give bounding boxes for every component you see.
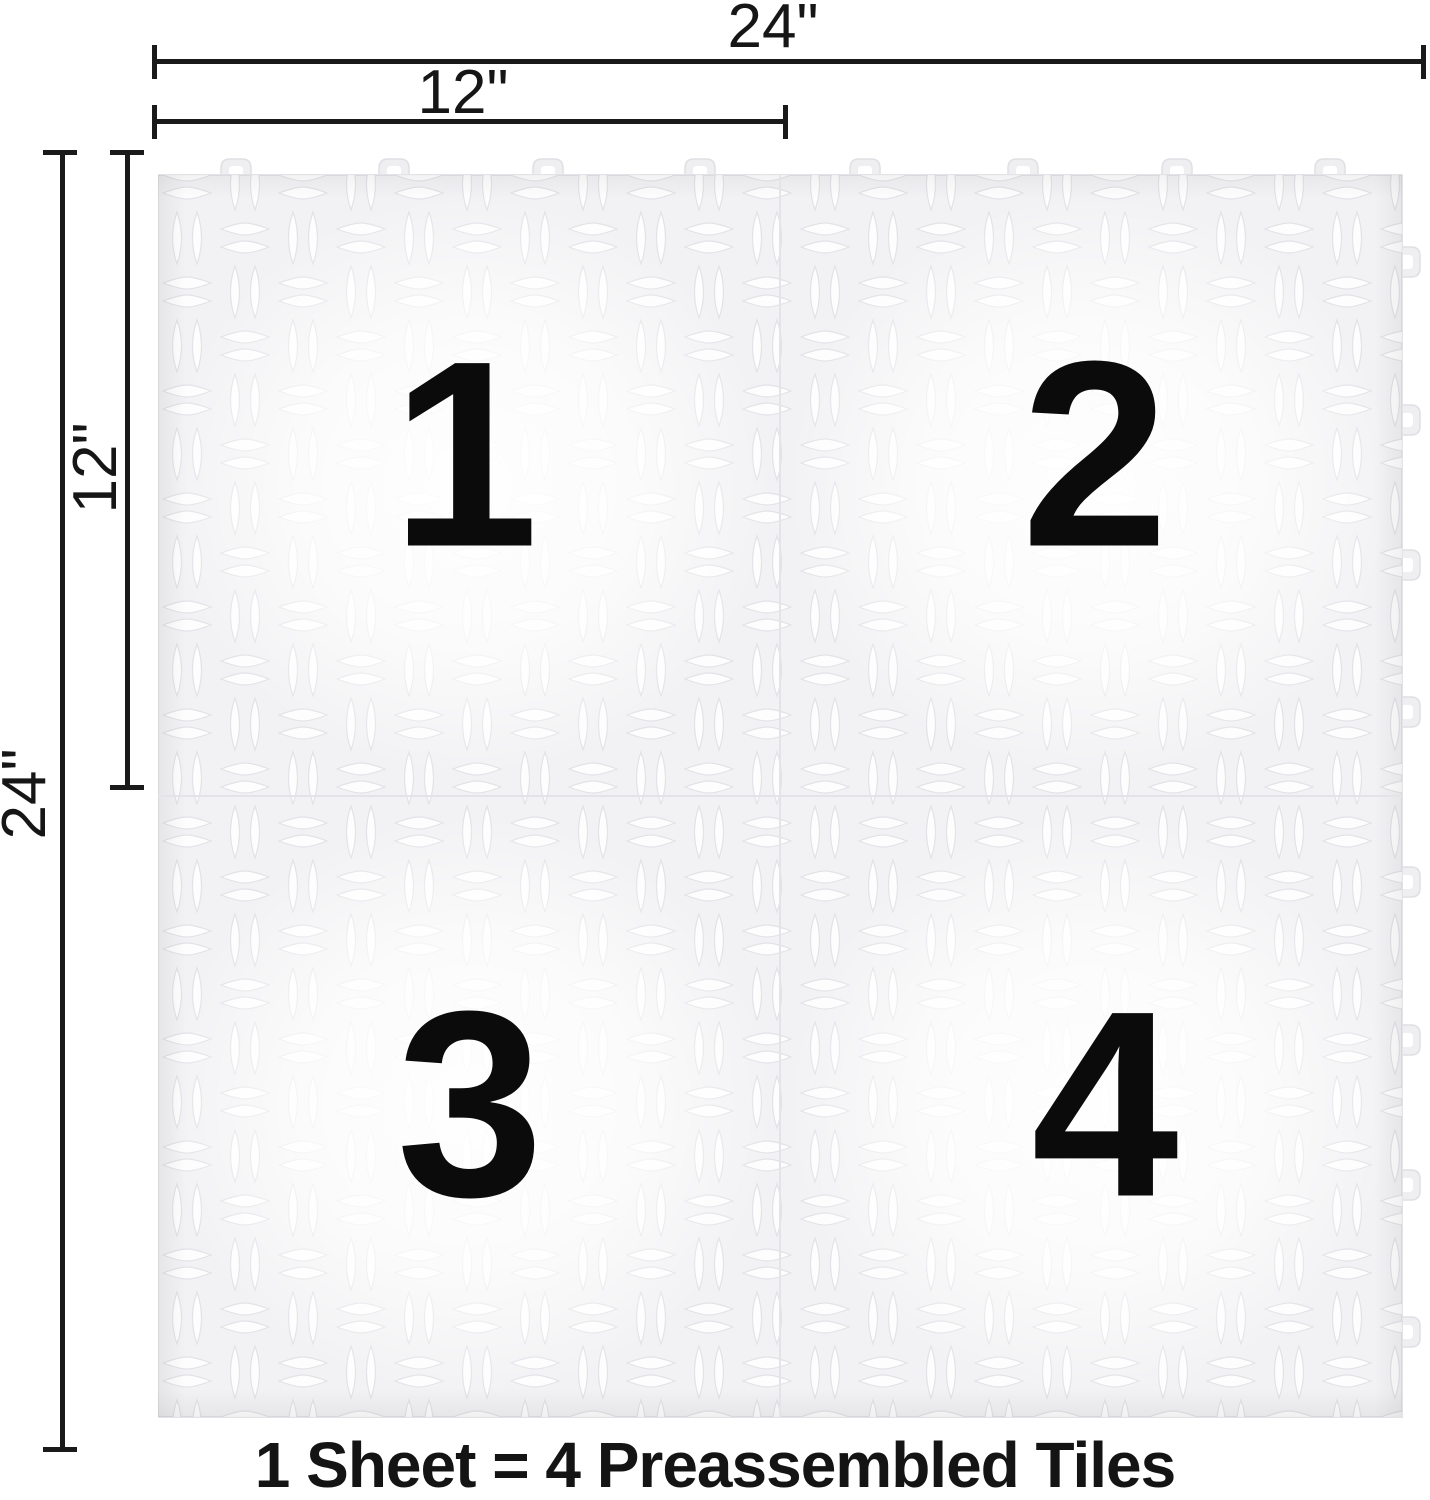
connector-tab (1402, 867, 1420, 897)
tile-3-number: 3 (396, 973, 543, 1238)
dim-tick (152, 45, 157, 79)
tile-4-number: 4 (1031, 973, 1178, 1238)
connector-tab (1402, 405, 1420, 435)
dim-tick (1421, 45, 1426, 79)
dim-24in-top-label: 24" (728, 0, 819, 58)
connector-tab (1402, 247, 1420, 277)
dim-24in-left-label: 24" (0, 749, 56, 840)
dim-12in-top-label: 12" (418, 62, 509, 124)
connector-tab (1402, 1170, 1420, 1200)
tile-sheet-diagram: 1 2 3 4 24" 12" 24" 12" 1 Sheet = 4 Prea… (0, 0, 1430, 1500)
dim-tick (110, 785, 144, 790)
tile-sheet-image (158, 157, 1426, 1418)
connector-tab (1402, 1317, 1420, 1347)
tile-1-number: 1 (391, 323, 538, 588)
dim-tick (783, 105, 788, 139)
connector-tab (1402, 1025, 1420, 1055)
dim-tick (152, 105, 157, 139)
connector-tab (1402, 697, 1420, 727)
dim-12in-left-label: 12" (65, 423, 127, 514)
tile-2-number: 2 (1021, 323, 1168, 588)
dim-tick (110, 150, 144, 155)
dim-line (60, 152, 65, 1452)
dim-tick (43, 150, 77, 155)
caption: 1 Sheet = 4 Preassembled Tiles (0, 1433, 1430, 1497)
connector-tab (1402, 550, 1420, 580)
